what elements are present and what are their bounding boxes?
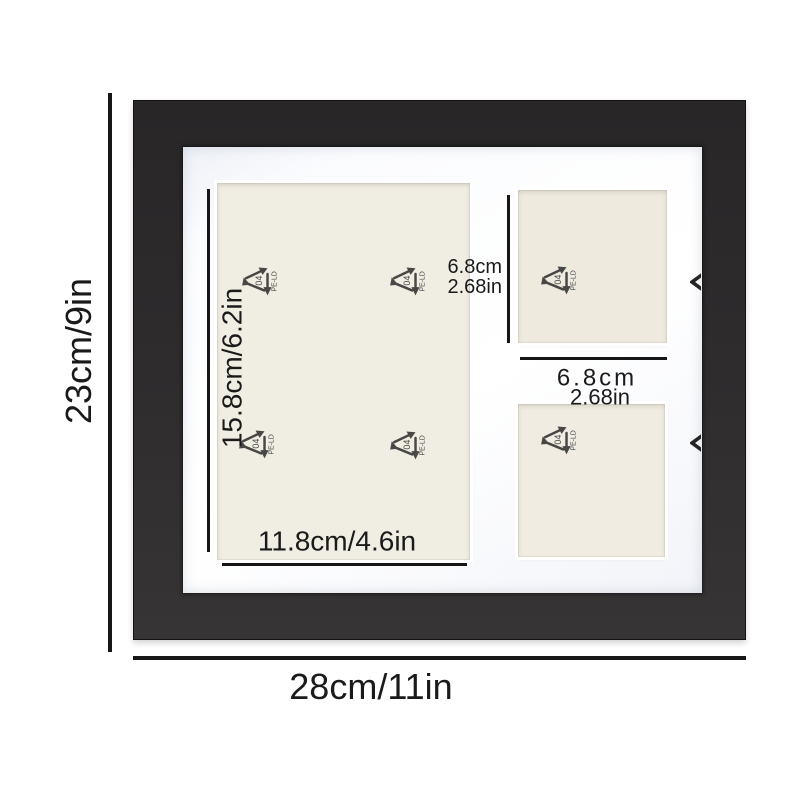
recycle-code-label: 04 [552,435,562,445]
recycle-icon-slot: 04 PE-LD [534,257,580,303]
dimension-line-small-opening-width [520,357,667,360]
recycle-code-label: 04 [250,439,260,449]
small-opening-height-cm: 6.8cm [392,257,502,277]
recycle-material-label: PE-LD [570,430,576,451]
product-image: 04 PE-LD 04 PE-LD 04 PE-LD [0,0,800,800]
recycle-icon-partial-slot [690,272,701,292]
small-opening-height-in: 2.68in [392,277,502,297]
dimension-line-outer-height [108,93,112,652]
dimension-line-large-opening-height [207,189,210,552]
recycle-icon-slot: 04 PE-LD [383,422,429,468]
recycle-material-label: PE-LD [570,270,576,291]
recycle-icon-slot: 04 PE-LD [534,417,580,463]
outer-width-label: 28cm/11in [289,668,452,706]
recycle-04-peld-icon: 04 PE-LD [538,423,576,457]
recycle-material-label: PE-LD [268,434,274,455]
outer-height-label: 23cm/9in [60,278,98,424]
large-photo-opening [217,183,470,560]
small-opening-width-in: 2.68in [570,385,630,408]
recycle-icon-partial [690,433,701,453]
dimension-line-small-opening-height [507,195,510,343]
small-opening-height-label: 6.8cm 2.68in [392,257,502,297]
recycle-icon-partial [690,272,701,292]
large-opening-width-label: 11.8cm/4.6in [258,526,416,555]
recycle-code-label: 04 [401,440,411,450]
recycle-material-label: PE-LD [419,435,425,456]
dimension-line-outer-width [133,656,746,660]
large-opening-height-label: 15.8cm/6.2in [217,288,246,448]
recycle-code-label: 04 [552,275,562,285]
picture-frame: 04 PE-LD 04 PE-LD 04 PE-LD [133,100,746,640]
dimension-line-large-opening-width [222,563,467,566]
recycle-code-label: 04 [253,276,263,286]
recycle-04-peld-icon: 04 PE-LD [387,428,425,462]
recycle-04-peld-icon: 04 PE-LD [538,263,576,297]
recycle-icon-partial-slot [690,433,701,453]
mat-board: 04 PE-LD 04 PE-LD 04 PE-LD [183,147,702,593]
recycle-material-label: PE-LD [271,271,277,292]
